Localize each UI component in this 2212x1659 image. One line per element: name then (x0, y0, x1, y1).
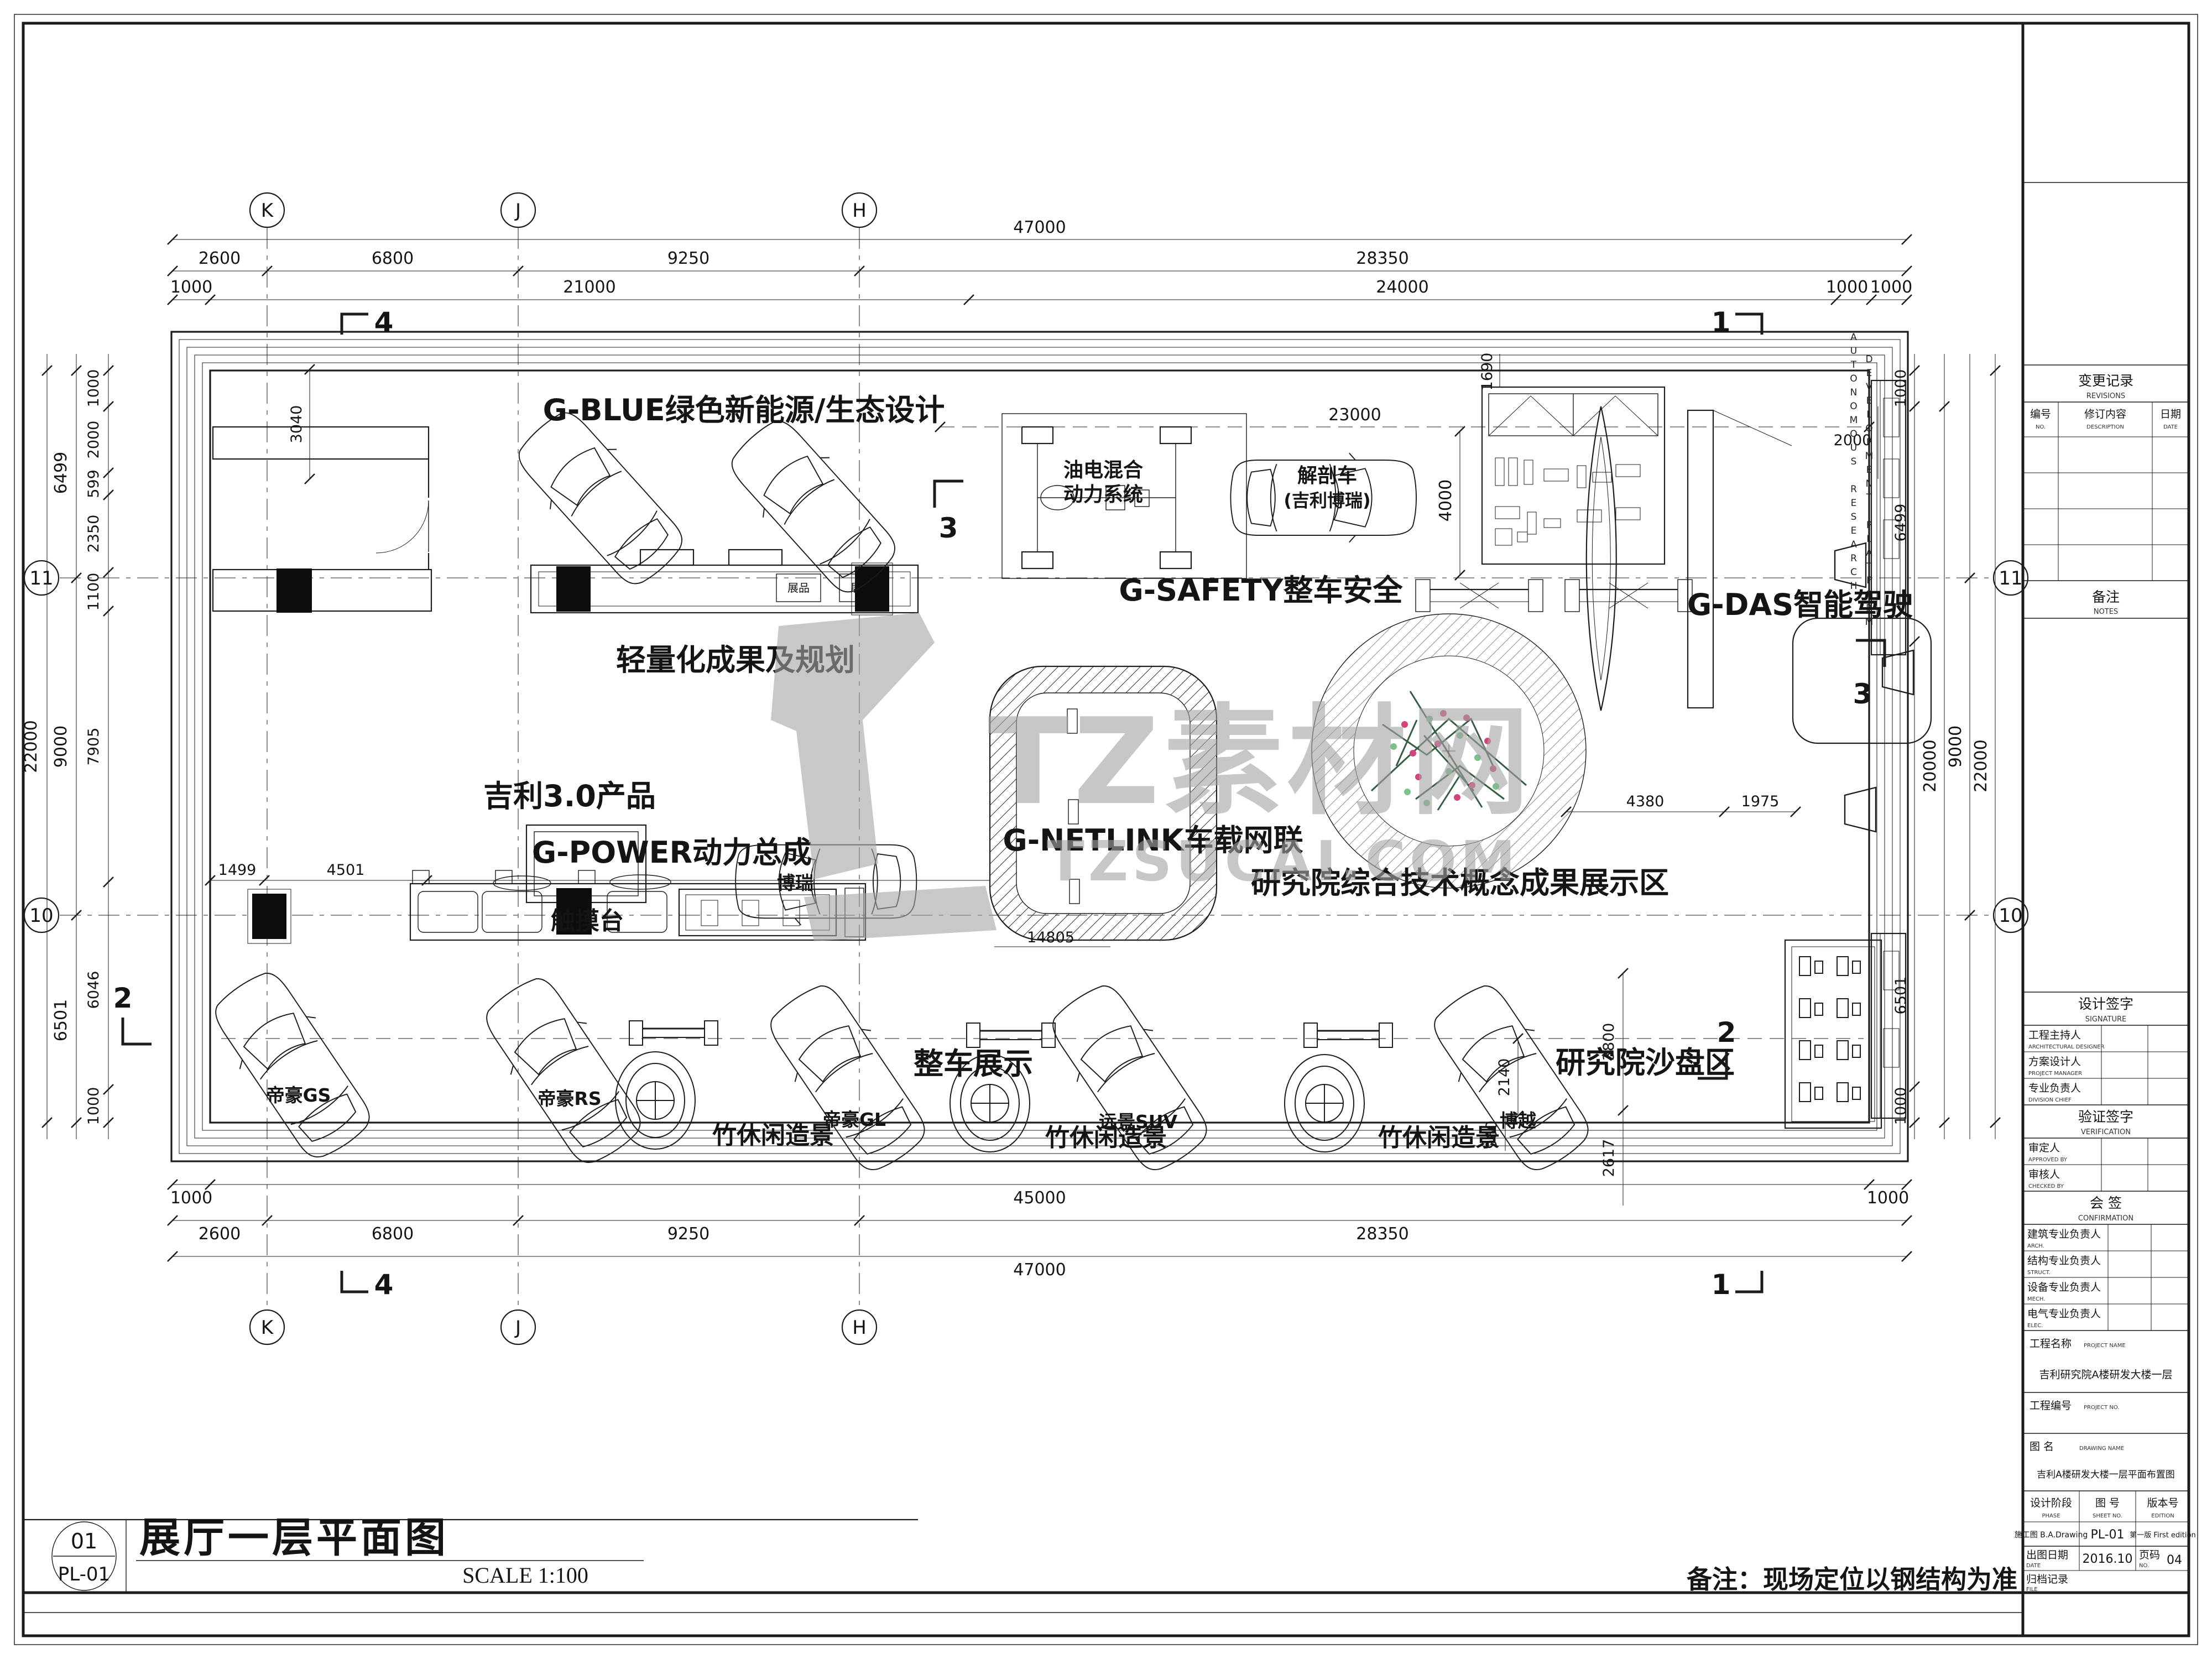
dim-3040: 3040 (288, 364, 315, 484)
anatomy-car: 解剖车 (吉利博瑞) (1230, 453, 1416, 542)
bench-tables (1416, 580, 1692, 612)
dim-4380-1975: 4380 1975 (1561, 793, 1801, 817)
dim-3040-label: 3040 (288, 405, 305, 444)
grid-bubble-j-top: J (501, 193, 535, 227)
file-row: 归档记录 FILE (2023, 1571, 2189, 1593)
dim-20000-right: 20000 (1921, 739, 1940, 792)
title-block: 变更记录 REVISIONS 编号 NO. 修订内容 DESCRIPTION 日… (2015, 23, 2196, 1636)
dim-1000-top-b: 1000 (1826, 278, 1868, 297)
edition-label-en: EDITION (2151, 1513, 2174, 1519)
edition-label-cn: 版本号 (2147, 1497, 2178, 1509)
dim-li-1100: 1100 (85, 573, 102, 611)
project-name-value: 吉利研究院A楼研发大楼一层 (2039, 1369, 2173, 1381)
dim-1975-label: 1975 (1741, 793, 1780, 810)
car-gblue-1 (505, 400, 696, 598)
confirmation-title-en: CONFIRMATION (2078, 1214, 2133, 1223)
notes-box: 备注 NOTES (2023, 589, 2189, 618)
car-label-gs: 帝豪GS (267, 1084, 331, 1106)
watermark: TZ素材网 TZSUCAI.COM (771, 613, 1534, 941)
grid-label-k2: K (261, 1317, 274, 1339)
notes-title-cn: 备注 (2092, 589, 2120, 605)
grid-bubble-j-bottom: J (501, 1310, 535, 1344)
sig-row3-en: DIVISION CHIEF (2028, 1097, 2072, 1103)
conf-row1-cn: 建筑专业负责人 (2027, 1228, 2101, 1240)
dim-14805-label: 14805 (1027, 929, 1074, 946)
conf-row3-cn: 设备专业负责人 (2027, 1281, 2101, 1293)
drawing-name-value: 吉利A楼研发大楼一层平面布置图 (2037, 1469, 2175, 1480)
confirmation-title-cn: 会 签 (2090, 1195, 2122, 1211)
section-4-bottom: 4 (374, 1269, 394, 1301)
dim-4380-label: 4380 (1626, 793, 1665, 810)
dim-2600-top: 2600 (199, 249, 241, 268)
dim-li-1000a: 1000 (85, 369, 102, 408)
site-note: 备注：现场定位以钢结构为准 (1687, 1564, 2017, 1594)
reception-room (213, 427, 431, 613)
conf-row4-cn: 电气专业负责人 (2027, 1308, 2101, 1320)
verification-title-cn: 验证签字 (2078, 1109, 2133, 1125)
conf-row2-cn: 结构专业负责人 (2027, 1255, 2101, 1267)
rev-col-date-cn: 日期 (2160, 408, 2181, 420)
dim-22000-right: 22000 (1971, 739, 1991, 792)
hybrid-chassis-platform: 油电混合 动力系统 (1002, 414, 1246, 578)
dim-6800-top: 6800 (372, 249, 414, 268)
dim-2617-label: 2617 (1600, 1139, 1618, 1177)
date-value: 2016.10 (2083, 1552, 2133, 1566)
project-no-box: 工程编号 PROJECT NO. (2023, 1392, 2189, 1412)
dimensions-top: 47000 2600 6800 9250 28350 1000 21000 24… (168, 218, 1912, 305)
sig-row1-cn: 工程主持人 (2028, 1029, 2081, 1041)
revisions-title-cn: 变更记录 (2078, 373, 2133, 389)
exhibit-label-1: 展品 (787, 581, 810, 594)
edition-value: 第一版 First edition (2130, 1531, 2195, 1540)
conf-row1-en: ARCH. (2027, 1243, 2044, 1249)
equipment-room (1482, 387, 1665, 564)
project-name-box: 工程名称 PROJECT NAME 吉利研究院A楼研发大楼一层 (2023, 1331, 2189, 1381)
dim-1690: 1690 (1479, 353, 1500, 391)
section-1-bottom: 1 (1712, 1269, 1731, 1301)
watermark-domain: TZSUCAI.COM (1047, 829, 1520, 894)
project-no-label-en: PROJECT NO. (2084, 1405, 2120, 1411)
ver-row2-cn: 审核人 (2028, 1168, 2060, 1181)
grid-label-h2: H (852, 1317, 867, 1339)
anatomy-label-1: 解剖车 (1297, 465, 1357, 487)
dim-1499-label: 1499 (218, 862, 257, 879)
file-label-cn: 归档记录 (2026, 1573, 2068, 1585)
dim-1000-bot-a: 1000 (170, 1188, 212, 1208)
confirmation-table: 会 签 CONFIRMATION 建筑专业负责人 ARCH. 结构专业负责人 S… (2023, 1191, 2189, 1331)
car-emgrand-gs: 帝豪GS (201, 961, 384, 1170)
sheetno-label-cn: 图 号 (2095, 1497, 2120, 1509)
phase-label-cn: 设计阶段 (2030, 1497, 2072, 1509)
dim-9250-top: 9250 (667, 249, 709, 268)
ver-row1-cn: 审定人 (2028, 1142, 2060, 1154)
sig-row1-en: ARCHITECTURAL DESIGNER (2028, 1044, 2105, 1050)
drawing-scale: SCALE 1:100 (462, 1563, 588, 1588)
grid-label-j: J (514, 200, 521, 222)
car-emgrand-rs: 帝豪RS (472, 967, 655, 1176)
date-label-en: DATE (2026, 1563, 2041, 1569)
page-value: 04 (2167, 1553, 2182, 1567)
car-label-rs: 帝豪RS (538, 1088, 601, 1109)
label-g-safety: G-SAFETY整车安全 (1119, 573, 1403, 608)
dim-li-1000b: 1000 (85, 1087, 102, 1125)
dim-4000-label: 4000 (1436, 479, 1455, 521)
dim-6501-left: 6501 (51, 999, 71, 1041)
dim-li-2000: 2000 (85, 421, 102, 459)
verification-title-en: VERIFICATION (2081, 1128, 2131, 1136)
dim-4501-label: 4501 (327, 862, 365, 879)
signature-title-cn: 设计签字 (2078, 996, 2133, 1012)
dimensions-left: 22000 6499 9000 6501 1000 2000 599 2350 … (22, 354, 113, 1139)
dim-1000-top-c: 1000 (1870, 278, 1912, 297)
grid-label-11: 11 (29, 567, 53, 589)
signature-table: 设计签字 SIGNATURE 工程主持人 ARCHITECTURAL DESIG… (2023, 992, 2189, 1105)
conf-row4-en: ELEC. (2027, 1323, 2043, 1329)
dim-2600-bot: 2600 (199, 1224, 241, 1244)
project-name-label-en: PROJECT NAME (2084, 1343, 2126, 1349)
dim-3800-2617: 3800 2617 (1600, 968, 1628, 1206)
dim-47000-top: 47000 (1013, 218, 1066, 237)
dim-23000: 23000 (935, 405, 1874, 432)
drawing-name-label-cn: 图 名 (2030, 1441, 2054, 1453)
ver-row1-en: APPROVED BY (2028, 1157, 2068, 1163)
phase-sheet-edition-row: 设计阶段 PHASE 图 号 SHEET NO. 版本号 EDITION 施工图… (2015, 1491, 2196, 1546)
sand-table (1785, 940, 1881, 1128)
grid-label-j2: J (514, 1317, 521, 1339)
figure-number: 01 (71, 1529, 97, 1553)
project-no-label-cn: 工程编号 (2030, 1400, 2072, 1412)
dim-1690-label: 1690 (1479, 353, 1496, 391)
label-g-das: G-DAS智能驾驶 (1687, 587, 1913, 622)
section-2-right: 2 (1717, 1016, 1736, 1048)
dim-ri-6501: 6501 (1892, 977, 1910, 1015)
label-g-power: G-POWER动力总成 (532, 835, 812, 870)
grid-bubble-h-bottom: H (842, 1310, 877, 1344)
conf-row2-en: STRUCT. (2027, 1270, 2051, 1276)
dim-45000-bot: 45000 (1013, 1188, 1066, 1208)
rev-col-desc-en: DESCRIPTION (2086, 424, 2124, 430)
notes-title-en: NOTES (2094, 608, 2118, 616)
dim-li-6046: 6046 (85, 971, 102, 1009)
rev-col-date-en: DATE (2163, 424, 2178, 430)
hybrid-label-2: 动力系统 (1063, 483, 1143, 506)
verification-table: 验证签字 VERIFICATION 审定人 APPROVED BY 审核人 CH… (2023, 1105, 2189, 1191)
drawing-title: 展厅一层平面图 (139, 1514, 449, 1562)
section-3-right: 3 (1853, 678, 1872, 710)
label-g-blue: G-BLUE绿色新能源/生态设计 (543, 393, 945, 427)
grid-label-11r: 11 (1999, 567, 2022, 589)
car-label-borui: 博瑞 (777, 872, 813, 894)
conf-row3-en: MECH. (2027, 1296, 2045, 1302)
page-label-cn: 页码 (2139, 1549, 2160, 1561)
grid-bubble-11-left: 11 (24, 561, 59, 595)
dim-47000-bot: 47000 (1013, 1260, 1066, 1280)
sig-row2-en: PROJECT MANAGER (2028, 1071, 2082, 1077)
sig-row3-cn: 专业负责人 (2028, 1082, 2081, 1094)
signature-title-en: SIGNATURE (2085, 1015, 2126, 1024)
grid-label-10: 10 (29, 905, 53, 927)
label-bamboo-2: 竹休闲造景 (1045, 1124, 1167, 1152)
dim-li-7905: 7905 (85, 728, 102, 766)
grid-label-10r: 10 (1999, 905, 2022, 927)
rev-col-no-cn: 编号 (2030, 408, 2051, 420)
watermark-brand: TZ素材网 (988, 692, 1534, 831)
das-en-col1: AUTONOMOUS RESEARCH (1848, 332, 1859, 594)
rev-col-no-en: NO. (2036, 424, 2046, 430)
grid-bubble-k-top: K (250, 193, 284, 227)
dim-6800-bot: 6800 (372, 1224, 414, 1244)
revisions-title-en: REVISIONS (2086, 392, 2125, 400)
dim-ri-6499: 6499 (1892, 504, 1910, 542)
car-label-boyue: 博越 (1500, 1110, 1537, 1131)
sig-row2-cn: 方案设计人 (2028, 1056, 2081, 1068)
dim-li-2350: 2350 (85, 515, 102, 553)
page-label-en: NO. (2139, 1563, 2149, 1569)
anatomy-label-2: (吉利博瑞) (1284, 490, 1370, 511)
dim-9250-bot: 9250 (667, 1224, 709, 1244)
hybrid-label-1: 油电混合 (1063, 459, 1143, 482)
bottom-title-bar: 01 PL-01 展厅一层平面图 SCALE 1:100 备注：现场定位以钢结构… (23, 1514, 2189, 1613)
section-4-top: 4 (374, 306, 394, 338)
dim-4000: 4000 (1436, 426, 1465, 580)
date-label-cn: 出图日期 (2026, 1549, 2068, 1561)
dim-6499-left: 6499 (51, 452, 71, 494)
rev-col-desc-cn: 修订内容 (2084, 408, 2126, 420)
dim-22000-left: 22000 (22, 720, 41, 773)
label-vehicle-display: 整车展示 (914, 1046, 1033, 1081)
grid-bubble-k-bottom: K (250, 1310, 284, 1344)
dim-1000-top-a: 1000 (170, 278, 212, 297)
dim-li-599: 599 (85, 469, 102, 498)
label-touch-table: 触摸台 (551, 907, 624, 935)
dim-9000-right: 9000 (1946, 726, 1965, 768)
drawing-name-box: 图 名 DRAWING NAME 吉利A楼研发大楼一层平面布置图 (2023, 1433, 2189, 1480)
section-3-left: 3 (939, 512, 958, 544)
label-geely30: 吉利3.0产品 (483, 779, 656, 813)
dimensions-bottom: 1000 45000 1000 2600 6800 9250 28350 470… (168, 1180, 1912, 1280)
dim-21000-top: 21000 (563, 278, 615, 297)
column-k-grid10 (248, 889, 291, 943)
dim-28350-bot: 28350 (1356, 1224, 1408, 1244)
dim-ri-1000a: 1000 (1892, 369, 1910, 408)
dim-ri-1000b: 1000 (1892, 1087, 1910, 1125)
dim-28350-top: 28350 (1356, 249, 1408, 268)
drawing-sheet: { "watermark":{"brand":"TZ素材网","domain":… (0, 0, 2212, 1659)
grid-label-h: H (852, 200, 867, 222)
revisions-table: 变更记录 REVISIONS 编号 NO. 修订内容 DESCRIPTION 日… (2023, 373, 2189, 581)
floor-plan-canvas: K J H K J H 11 10 11 10 47000 2600 6800 … (0, 0, 2212, 1659)
section-1-top: 1 (1712, 306, 1731, 338)
section-2-left: 2 (113, 982, 133, 1014)
dim-24000-top: 24000 (1376, 278, 1428, 297)
drawing-name-label-en: DRAWING NAME (2079, 1446, 2124, 1452)
car-emgrand-gl: 帝豪GL (757, 974, 939, 1183)
dim-9000-left: 9000 (51, 726, 71, 768)
date-page-row: 出图日期 DATE 2016.10 页码 NO. 04 (2023, 1546, 2189, 1571)
label-bamboo-1: 竹休闲造景 (712, 1121, 834, 1150)
project-name-label-cn: 工程名称 (2030, 1338, 2072, 1350)
figure-sheet-number: PL-01 (58, 1563, 110, 1585)
sheetno-label-en: SHEET NO. (2093, 1513, 2122, 1519)
phase-label-en: PHASE (2042, 1513, 2060, 1519)
label-bamboo-3: 竹休闲造景 (1378, 1124, 1500, 1152)
label-sandbox: 研究院沙盘区 (1556, 1045, 1735, 1080)
dim-23000-label: 23000 (1328, 405, 1381, 425)
ver-row2-en: CHECKED BY (2028, 1183, 2064, 1190)
grid-bubble-10-left: 10 (24, 898, 59, 932)
grid-bubble-h-top: H (842, 193, 877, 227)
phase-value: 施工图 B.A.Drawing (2015, 1531, 2088, 1540)
dim-1000-bot-b: 1000 (1867, 1188, 1909, 1208)
sheetno-value: PL-01 (2090, 1528, 2124, 1542)
grid-label-k: K (261, 200, 274, 222)
